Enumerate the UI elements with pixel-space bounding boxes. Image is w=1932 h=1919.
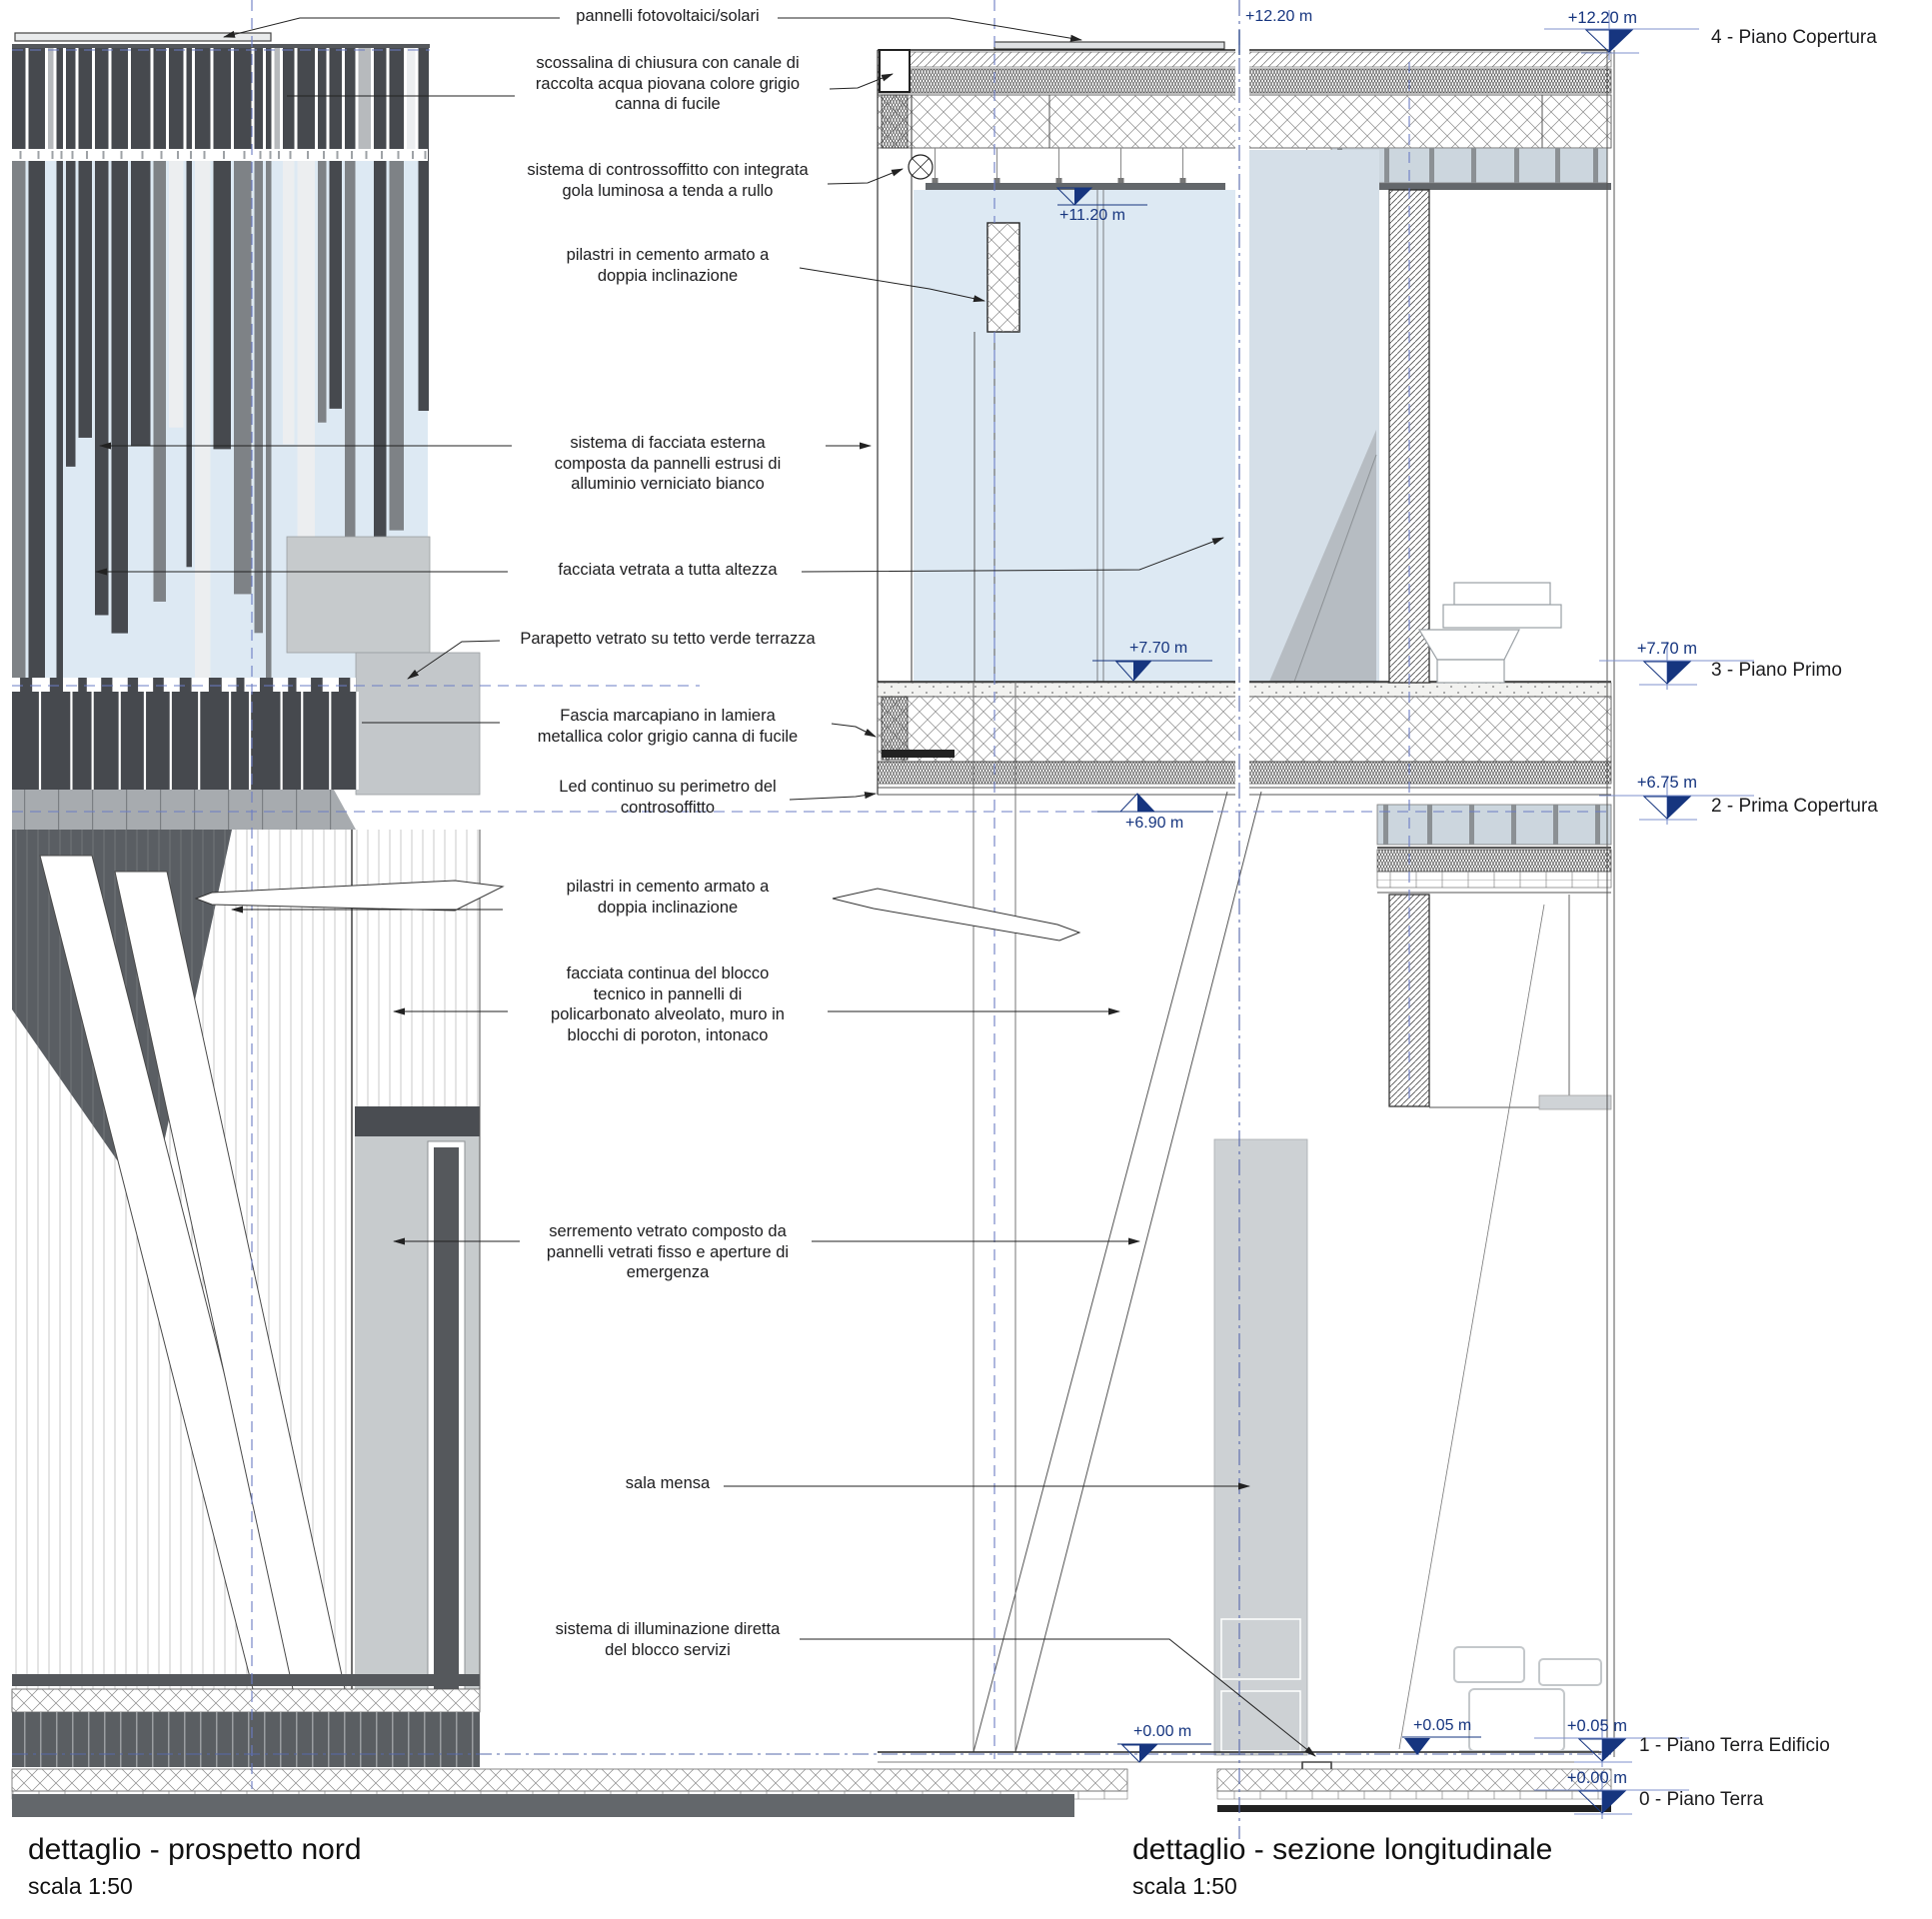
- level-label-3: 3 - Piano Primo: [1711, 660, 1842, 682]
- parapet-block: [287, 537, 430, 653]
- door-leaf: [434, 1147, 459, 1689]
- door-header: [355, 1106, 480, 1136]
- mark-770: +7.70 m: [1129, 640, 1187, 658]
- level-value-0: +0.00 m: [1517, 1769, 1627, 1788]
- annotation-led-continuo: Led continuo su perimetro del controsoff…: [498, 777, 838, 818]
- level-label-0: 0 - Piano Terra: [1639, 1789, 1763, 1811]
- level-value-1: +0.05 m: [1517, 1717, 1627, 1736]
- annotation-facciata-esterna: sistema di facciata esterna composta da …: [498, 433, 838, 495]
- annotation-serremento: serremento vetrato composto da pannelli …: [498, 1221, 838, 1283]
- annotation-pilastri-1: pilastri in cemento armato a doppia incl…: [498, 245, 838, 286]
- level-label-1: 1 - Piano Terra Edificio: [1639, 1735, 1830, 1757]
- scale-prospetto-nord: scala 1:50: [28, 1873, 133, 1900]
- architectural-sheet: pannelli fotovoltaici/solari scossalina …: [0, 0, 1932, 1919]
- mark-1220: +12.20 m: [1245, 8, 1312, 26]
- level-value-2: +6.75 m: [1587, 774, 1697, 793]
- level-marker-symbols: [1534, 10, 1754, 1819]
- level-label-2: 2 - Prima Copertura: [1711, 796, 1878, 818]
- scossalina-cap: [880, 50, 910, 92]
- level-label-4: 4 - Piano Copertura: [1711, 27, 1877, 49]
- mark-690: +6.90 m: [1125, 815, 1183, 833]
- scale-sezione-longitudinale: scala 1:50: [1132, 1873, 1237, 1900]
- annotation-sala-mensa: sala mensa: [498, 1473, 838, 1494]
- title-prospetto-nord: dettaglio - prospetto nord: [28, 1833, 362, 1867]
- annotation-controssoffitto: sistema di controssoffitto con integrata…: [498, 160, 838, 201]
- sala-mensa-panel: [1214, 1139, 1307, 1755]
- glass-wall: [914, 190, 1235, 682]
- annotation-facciata-continua: facciata continua del blocco tecnico in …: [498, 963, 838, 1045]
- solar-panel-strip: [994, 42, 1224, 49]
- mark-1120: +11.20 m: [1059, 207, 1125, 225]
- annotation-scossalina: scossalina di chiusura con canale di rac…: [498, 53, 838, 115]
- drawing-linework: [0, 0, 1932, 1919]
- annotation-facciata-vetrata: facciata vetrata a tutta altezza: [498, 560, 838, 581]
- level-value-4: +12.20 m: [1527, 9, 1637, 28]
- wc-fixture: [1419, 583, 1561, 683]
- level-value-3: +7.70 m: [1587, 640, 1697, 659]
- annotation-fascia-marcapiano: Fascia marcapiano in lamiera metallica c…: [498, 706, 838, 747]
- annotation-illuminazione: sistema di illuminazione diretta del blo…: [498, 1619, 838, 1660]
- annotation-parapetto: Parapetto vetrato su tetto verde terrazz…: [498, 629, 838, 650]
- mark-005: +0.05 m: [1413, 1717, 1471, 1735]
- site-base-bar: [12, 1794, 1074, 1817]
- mark-000: +0.00 m: [1133, 1723, 1191, 1741]
- title-sezione-longitudinale: dettaglio - sezione longitudinale: [1132, 1833, 1552, 1867]
- annotation-pilastri-2: pilastri in cemento armato a doppia incl…: [498, 877, 838, 918]
- annotation-pannelli-fotovoltaici: pannelli fotovoltaici/solari: [498, 6, 838, 27]
